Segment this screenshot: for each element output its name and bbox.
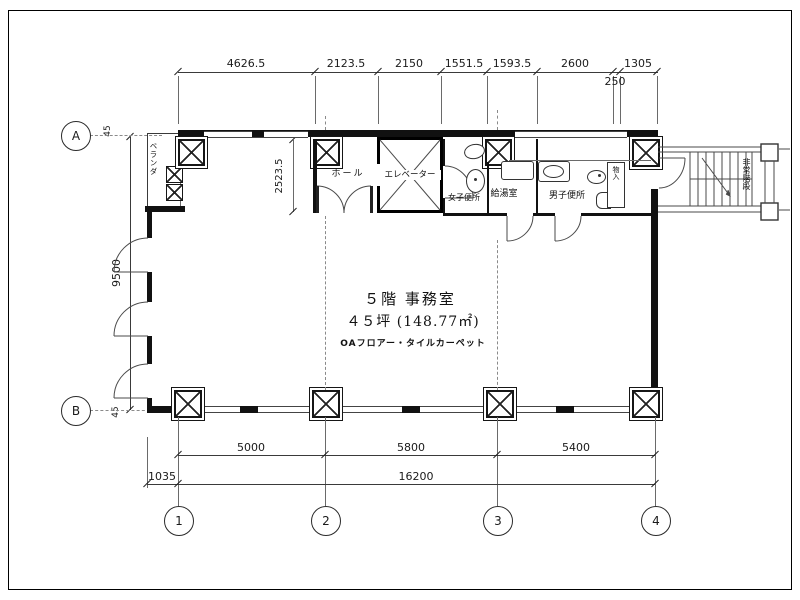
- dim-ext: [178, 76, 179, 124]
- grid-label: 2: [322, 514, 330, 528]
- dim-line: [178, 72, 658, 73]
- kitchen-label: 給湯室: [483, 189, 525, 199]
- grid-marker-a: A: [61, 121, 91, 151]
- office-title: ５階 事務室: [330, 288, 490, 309]
- veranda-label: ベランダ: [149, 142, 158, 204]
- grid-centerline-3: [497, 240, 498, 390]
- column-grid1-north: [178, 139, 205, 166]
- toilet-fixture-detail: [474, 178, 477, 181]
- grid-marker-1: 1: [164, 506, 194, 536]
- grid-label: A: [72, 129, 80, 143]
- stair-door-arc: [659, 158, 685, 188]
- veranda-wall: [147, 133, 178, 134]
- grid-marker-3: 3: [483, 506, 513, 536]
- dim-ext: [441, 76, 442, 124]
- column: [166, 166, 183, 183]
- grid-centerline-3: [497, 110, 498, 130]
- dim-ext: [537, 76, 538, 124]
- grid-marker-4: 4: [641, 506, 671, 536]
- window-north-2: [515, 131, 627, 138]
- stairs-label: 非常階段: [742, 158, 751, 204]
- exterior-wall-west: [147, 336, 152, 364]
- floor-plan-canvas: 4626.5 2123.5 2150 1551.5 1593.5 2600 13…: [0, 0, 800, 600]
- dim-ext: [657, 76, 658, 124]
- column-grid4-south: [632, 390, 660, 418]
- dim-line: [178, 455, 655, 456]
- dim-line: [147, 484, 655, 485]
- wall-stub: [252, 130, 264, 137]
- kitchen-counter: [501, 161, 534, 180]
- womens-wc-label: 女子便所: [441, 193, 487, 203]
- veranda-sill: [145, 206, 185, 212]
- dim-label: 2523.5: [274, 144, 286, 208]
- hall-door-leaf: [316, 186, 319, 213]
- hall-label: ホール: [322, 169, 374, 179]
- office-floor-spec: OAフロアー・タイルカーペット: [330, 336, 496, 349]
- dim-label: 5800: [371, 442, 451, 454]
- exterior-wall-west: [147, 272, 152, 302]
- wall-stub: [402, 406, 420, 413]
- exterior-wall-west: [147, 398, 152, 413]
- dim-offset-b: 45: [110, 400, 122, 424]
- dim-label-left-margin: 1035: [130, 471, 176, 483]
- grid-centerline-2: [325, 216, 326, 390]
- vanity-sink: [543, 165, 564, 178]
- office-area: ４５坪 (148.77㎡): [330, 311, 496, 331]
- west-door-arc: [114, 302, 148, 336]
- partition: [533, 213, 555, 216]
- veranda-wall: [147, 133, 148, 208]
- mens-wc-door-arc: [555, 216, 581, 241]
- grid-centerline-2: [325, 116, 326, 130]
- dim-ext: [178, 417, 179, 506]
- dim-label: 1305: [598, 58, 678, 70]
- dim-label: 4626.5: [206, 58, 286, 70]
- kitchen-door-arc: [507, 216, 533, 241]
- grid-line-b: [90, 410, 150, 411]
- dim-ext: [315, 76, 316, 124]
- partition: [443, 139, 445, 166]
- dim-label-total: 16200: [376, 471, 456, 483]
- dim-label-sub: 250: [597, 76, 633, 88]
- dim-label: 5400: [536, 442, 616, 454]
- west-door-arc: [114, 364, 148, 398]
- mens-wc-label: 男子便所: [544, 191, 590, 201]
- partition: [443, 213, 507, 216]
- storage-label: 物入: [611, 166, 620, 204]
- column-grid2-south: [312, 390, 340, 418]
- dim-ext: [487, 76, 488, 124]
- hall-door-arc: [317, 186, 344, 213]
- dim-ext: [325, 417, 326, 506]
- grid-marker-b: B: [61, 396, 91, 426]
- dim-label: 5000: [211, 442, 291, 454]
- column-grid1-south: [174, 390, 202, 418]
- grid-label: 1: [175, 514, 183, 528]
- grid-label: 4: [652, 514, 660, 528]
- dim-line: [293, 140, 294, 212]
- grid-line-a: [90, 135, 162, 136]
- hall-door-arc: [344, 186, 371, 213]
- dim-offset-a: 45: [102, 119, 114, 143]
- west-door-arc: [114, 238, 148, 272]
- wall-stub: [556, 406, 574, 413]
- toilet-fixture-detail: [598, 174, 601, 177]
- partition: [581, 213, 651, 216]
- toilet-fixture: [587, 170, 606, 184]
- column-grid2-north: [313, 139, 340, 166]
- dim-ext: [655, 417, 656, 506]
- wall-stub: [240, 406, 258, 413]
- dim-ext: [378, 76, 379, 124]
- hall-door-leaf: [370, 186, 373, 213]
- grid-label: B: [72, 404, 80, 418]
- grid-marker-2: 2: [311, 506, 341, 536]
- elevator-label: エレベーター: [379, 170, 441, 180]
- dim-ext: [497, 417, 498, 506]
- column-grid3-south: [486, 390, 514, 418]
- grid-label: 3: [494, 514, 502, 528]
- column: [166, 184, 183, 201]
